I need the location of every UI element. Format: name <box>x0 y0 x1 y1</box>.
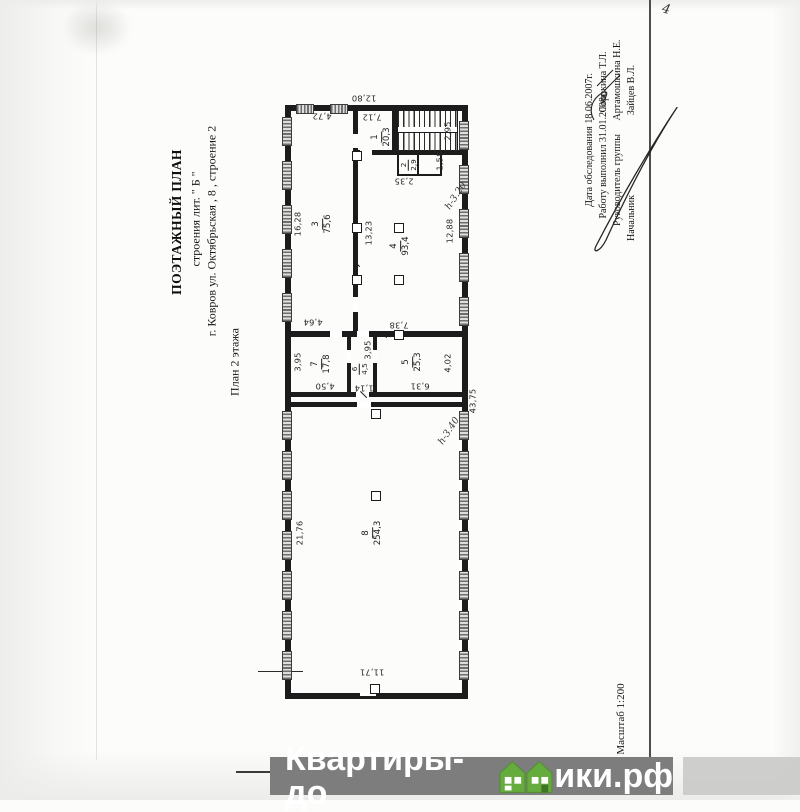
meta-leader-name: Артамошкина Н.Е. <box>613 40 624 121</box>
room5-number: 5 <box>402 356 413 367</box>
column <box>371 491 381 501</box>
watermark-bar[interactable]: Квартиры-до ики.рф <box>270 757 673 795</box>
title-building-lit: строения лит. " Б " <box>190 172 203 267</box>
door-opening <box>360 150 372 155</box>
scale-label: Масштаб 1:200 <box>616 683 628 754</box>
column <box>394 330 404 340</box>
dim-room5-depth: 4,02 <box>444 353 453 372</box>
column <box>371 409 381 419</box>
room2-area: 2,9 <box>409 159 418 170</box>
window <box>282 293 292 322</box>
window <box>282 531 292 560</box>
meta-executor-name: Сорокина Т.Л. <box>599 51 610 112</box>
room8-number: 8 <box>362 527 373 538</box>
window <box>282 205 292 234</box>
column <box>352 275 362 285</box>
window <box>282 451 292 480</box>
meta-group-leader: Руководитель группы <box>613 134 624 226</box>
window <box>459 491 469 520</box>
dim-room4-inner: 13,23 <box>365 221 374 246</box>
door-opening <box>353 297 358 312</box>
wall-segment <box>285 693 468 699</box>
title-floor: План 2 этажа <box>229 328 242 396</box>
window <box>459 253 469 282</box>
room-label-3: 3 75,6 <box>312 214 334 233</box>
room2-number: 2 <box>400 160 409 171</box>
dim-room4-bottom: 7,38 <box>389 321 408 330</box>
meta-chief-name: Зайцев В.Л. <box>627 65 638 115</box>
window <box>459 651 469 680</box>
watermark-houses-icon <box>499 758 553 794</box>
dim-room1-width: 7,12 <box>362 113 381 122</box>
door-opening <box>347 350 351 363</box>
window <box>282 571 292 600</box>
dim-building-width: 12,80 <box>352 94 377 103</box>
dim-room8-length: 21,76 <box>296 521 305 546</box>
scanned-floor-plan-page: { "title": { "line1": "ПОЭТАЖНЫЙ ПЛАН", … <box>0 0 800 800</box>
window <box>459 297 469 326</box>
window <box>282 611 292 640</box>
column <box>370 684 380 694</box>
dim-room5-width: 6,31 <box>410 382 429 391</box>
column <box>352 223 362 233</box>
room-label-7: 7 17,8 <box>311 354 333 373</box>
wall-segment <box>285 392 468 397</box>
wall-segment <box>285 402 468 407</box>
dim-room4-right: 12,88 <box>446 219 455 244</box>
window <box>282 117 292 146</box>
room5-area: 25,3 <box>413 352 424 371</box>
meta-survey-date: Дата обследования 18.06.2007г. <box>585 73 596 207</box>
room-label-5: 5 25,3 <box>402 352 424 371</box>
room4-area: 93,4 <box>401 236 412 255</box>
room1-number: 1 <box>371 131 382 142</box>
window <box>330 104 348 114</box>
room7-number: 7 <box>311 358 322 369</box>
plan-leader-line-bottom <box>236 771 270 773</box>
window <box>282 161 292 190</box>
room-label-2: 2 2,9 <box>400 159 418 170</box>
room3-area: 75,6 <box>323 214 334 233</box>
watermark-bar-faded <box>683 757 800 795</box>
meta-chief: Начальник <box>627 195 638 241</box>
room-label-4: 4 93,4 <box>390 236 412 255</box>
window <box>282 651 292 680</box>
title-address: г. Ковров ул. Октябрьская , 8 , строение… <box>206 126 219 336</box>
window <box>459 209 469 238</box>
dim-room7-width: 4,50 <box>315 382 334 391</box>
floor-plan-drawing: 12,80 4,72 7,12 2,95 2,35 1,58 16,28 13,… <box>0 0 800 800</box>
room6-area: 4,5 <box>360 363 369 374</box>
dim-room7-depth: 3,95 <box>294 352 303 371</box>
watermark-text-right: ики.рф <box>554 759 673 793</box>
window <box>459 571 469 600</box>
door-opening <box>357 402 371 407</box>
door-opening <box>357 331 369 337</box>
door-opening <box>353 134 358 148</box>
window <box>459 121 469 150</box>
room-label-1: 1 20,3 <box>371 127 393 146</box>
room-label-8: 8 254,3 <box>362 521 384 546</box>
door-opening <box>330 331 342 337</box>
column <box>352 151 362 161</box>
dim-room3-length: 16,28 <box>294 212 303 237</box>
window <box>459 411 469 440</box>
dim-room3-top: 4,72 <box>312 112 331 121</box>
dim-stairs: 2,95 <box>444 121 453 140</box>
dim-room6-depth: 3,95 <box>364 340 373 359</box>
room1-area: 20,3 <box>382 127 393 146</box>
room7-area: 17,8 <box>322 354 333 373</box>
room8-area: 254,3 <box>373 521 384 546</box>
window <box>282 491 292 520</box>
dim-building-length: 43,75 <box>469 389 478 414</box>
window <box>459 531 469 560</box>
leader-line <box>258 671 303 672</box>
window <box>296 104 314 114</box>
page-title: ПОЭТАЖНЫЙ ПЛАН <box>170 149 184 295</box>
room6-number: 6 <box>351 364 360 375</box>
dim-room6-width: 1,14 <box>354 384 373 393</box>
column <box>394 223 404 233</box>
window <box>459 451 469 480</box>
dim-room3-bottom: 4,64 <box>303 318 322 327</box>
dim-room2-depth: 1,58 <box>436 151 445 170</box>
window <box>282 249 292 278</box>
door-opening <box>373 350 377 363</box>
room3-number: 3 <box>312 218 323 229</box>
column <box>394 275 404 285</box>
window <box>459 611 469 640</box>
room-label-6: 6 4,5 <box>351 363 369 374</box>
room4-number: 4 <box>390 240 401 251</box>
window <box>282 411 292 440</box>
dim-room8-width: 11,71 <box>360 668 385 677</box>
dim-room2-width: 2,35 <box>394 177 413 186</box>
